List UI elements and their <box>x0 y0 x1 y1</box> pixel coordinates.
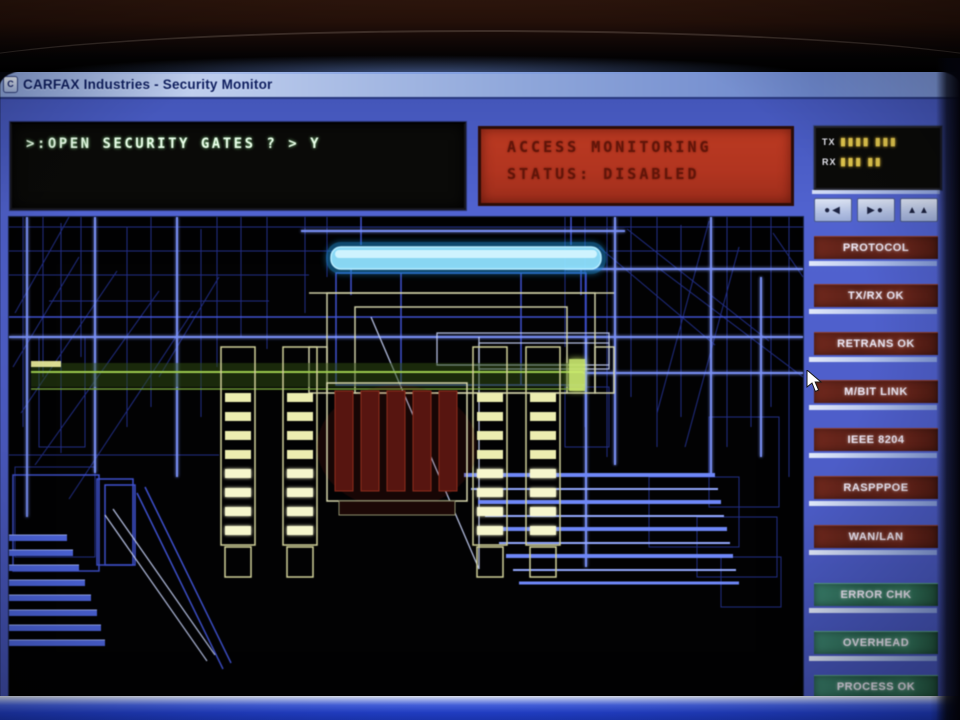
terminal-panel[interactable]: >:OPEN SECURITY GATES ? > Y <box>10 122 466 210</box>
button-bevel <box>809 453 937 458</box>
sidebar-slot: WAN/LAN <box>814 525 938 555</box>
sidebar-slot: TX/RX OK <box>814 284 938 314</box>
wireframe-scene <box>9 217 803 699</box>
sidebar-button-ieee-8204[interactable]: IEEE 8204 <box>814 428 938 451</box>
stairs-right <box>464 475 739 583</box>
sidebar-slot: RETRANS OK <box>814 332 938 362</box>
comm-panel-bevel <box>812 190 940 194</box>
sidebar-slot: IEEE 8204 <box>814 428 938 458</box>
terminal-prompt-line: >:OPEN SECURITY GATES ? > Y <box>12 124 464 152</box>
button-bevel <box>809 501 937 506</box>
crt-bezel-right <box>936 58 960 720</box>
button-bevel <box>809 550 937 555</box>
sidebar-button-wan-lan[interactable]: WAN/LAN <box>814 525 938 548</box>
stairs-left <box>9 535 105 646</box>
crt-photo: C CARFAX Industries - Security Monitor >… <box>0 0 960 720</box>
sidebar-button-raspppoe[interactable]: RASPPPOE <box>814 476 938 499</box>
monitor-screen: C CARFAX Industries - Security Monitor >… <box>0 70 960 720</box>
sidebar-slot: PROTOCOL <box>814 236 938 266</box>
sidebar-slot: OVERHEAD <box>814 631 938 661</box>
sidebar-button-mbit-link[interactable]: M/BIT LINK <box>814 380 938 403</box>
sidebar-slot: RASPPPOE <box>814 476 938 506</box>
sidebar-button-error-chk[interactable]: ERROR CHK <box>814 583 938 606</box>
comm-toolbar-button-2[interactable]: ▶● <box>857 198 895 222</box>
rx-label: RX <box>822 157 840 167</box>
sidebar-slot: ERROR CHK <box>814 583 938 613</box>
sidebar-slot: M/BIT LINK <box>814 380 938 410</box>
comm-toolbar-button-1[interactable]: ●◀ <box>814 198 852 222</box>
sidebar-button-txrx-ok[interactable]: TX/RX OK <box>814 284 938 307</box>
sidebar-button-overhead[interactable]: OVERHEAD <box>814 631 938 654</box>
button-bevel <box>809 405 937 410</box>
comm-toolbar-button-3[interactable]: ▲▲ <box>900 198 938 222</box>
access-status-line1: ACCESS MONITORING <box>507 138 791 156</box>
screen-bottom-glow <box>0 696 960 720</box>
security-door <box>317 383 477 515</box>
mouse-cursor <box>806 370 828 394</box>
button-bevel <box>809 357 937 362</box>
cyan-light-bar <box>329 245 603 271</box>
sidebar-button-retrans-ok[interactable]: RETRANS OK <box>814 332 938 355</box>
button-bevel <box>809 656 937 661</box>
button-bevel <box>809 608 937 613</box>
sidebar-button-process-ok[interactable]: PROCESS OK <box>814 675 938 698</box>
energy-band <box>31 359 585 391</box>
button-bevel <box>809 261 937 266</box>
comm-meter-panel: TX ▮▮▮▮ ▮▮▮ RX ▮▮▮ ▮▮ <box>814 126 942 190</box>
tx-meter: ▮▮▮▮ ▮▮▮ <box>840 135 897 148</box>
button-bevel <box>809 309 937 314</box>
comm-toolbar: ●◀ ▶● ▲▲ <box>814 198 938 222</box>
scene-viewport <box>8 216 804 699</box>
access-status-line2: STATUS: DISABLED <box>507 165 791 183</box>
sidebar-button-protocol[interactable]: PROTOCOL <box>814 236 938 259</box>
rx-meter: ▮▮▮ ▮▮ <box>840 155 882 168</box>
access-status-box: ACCESS MONITORING STATUS: DISABLED <box>478 126 794 206</box>
crt-bezel-top <box>0 0 960 72</box>
tx-label: TX <box>822 137 840 147</box>
